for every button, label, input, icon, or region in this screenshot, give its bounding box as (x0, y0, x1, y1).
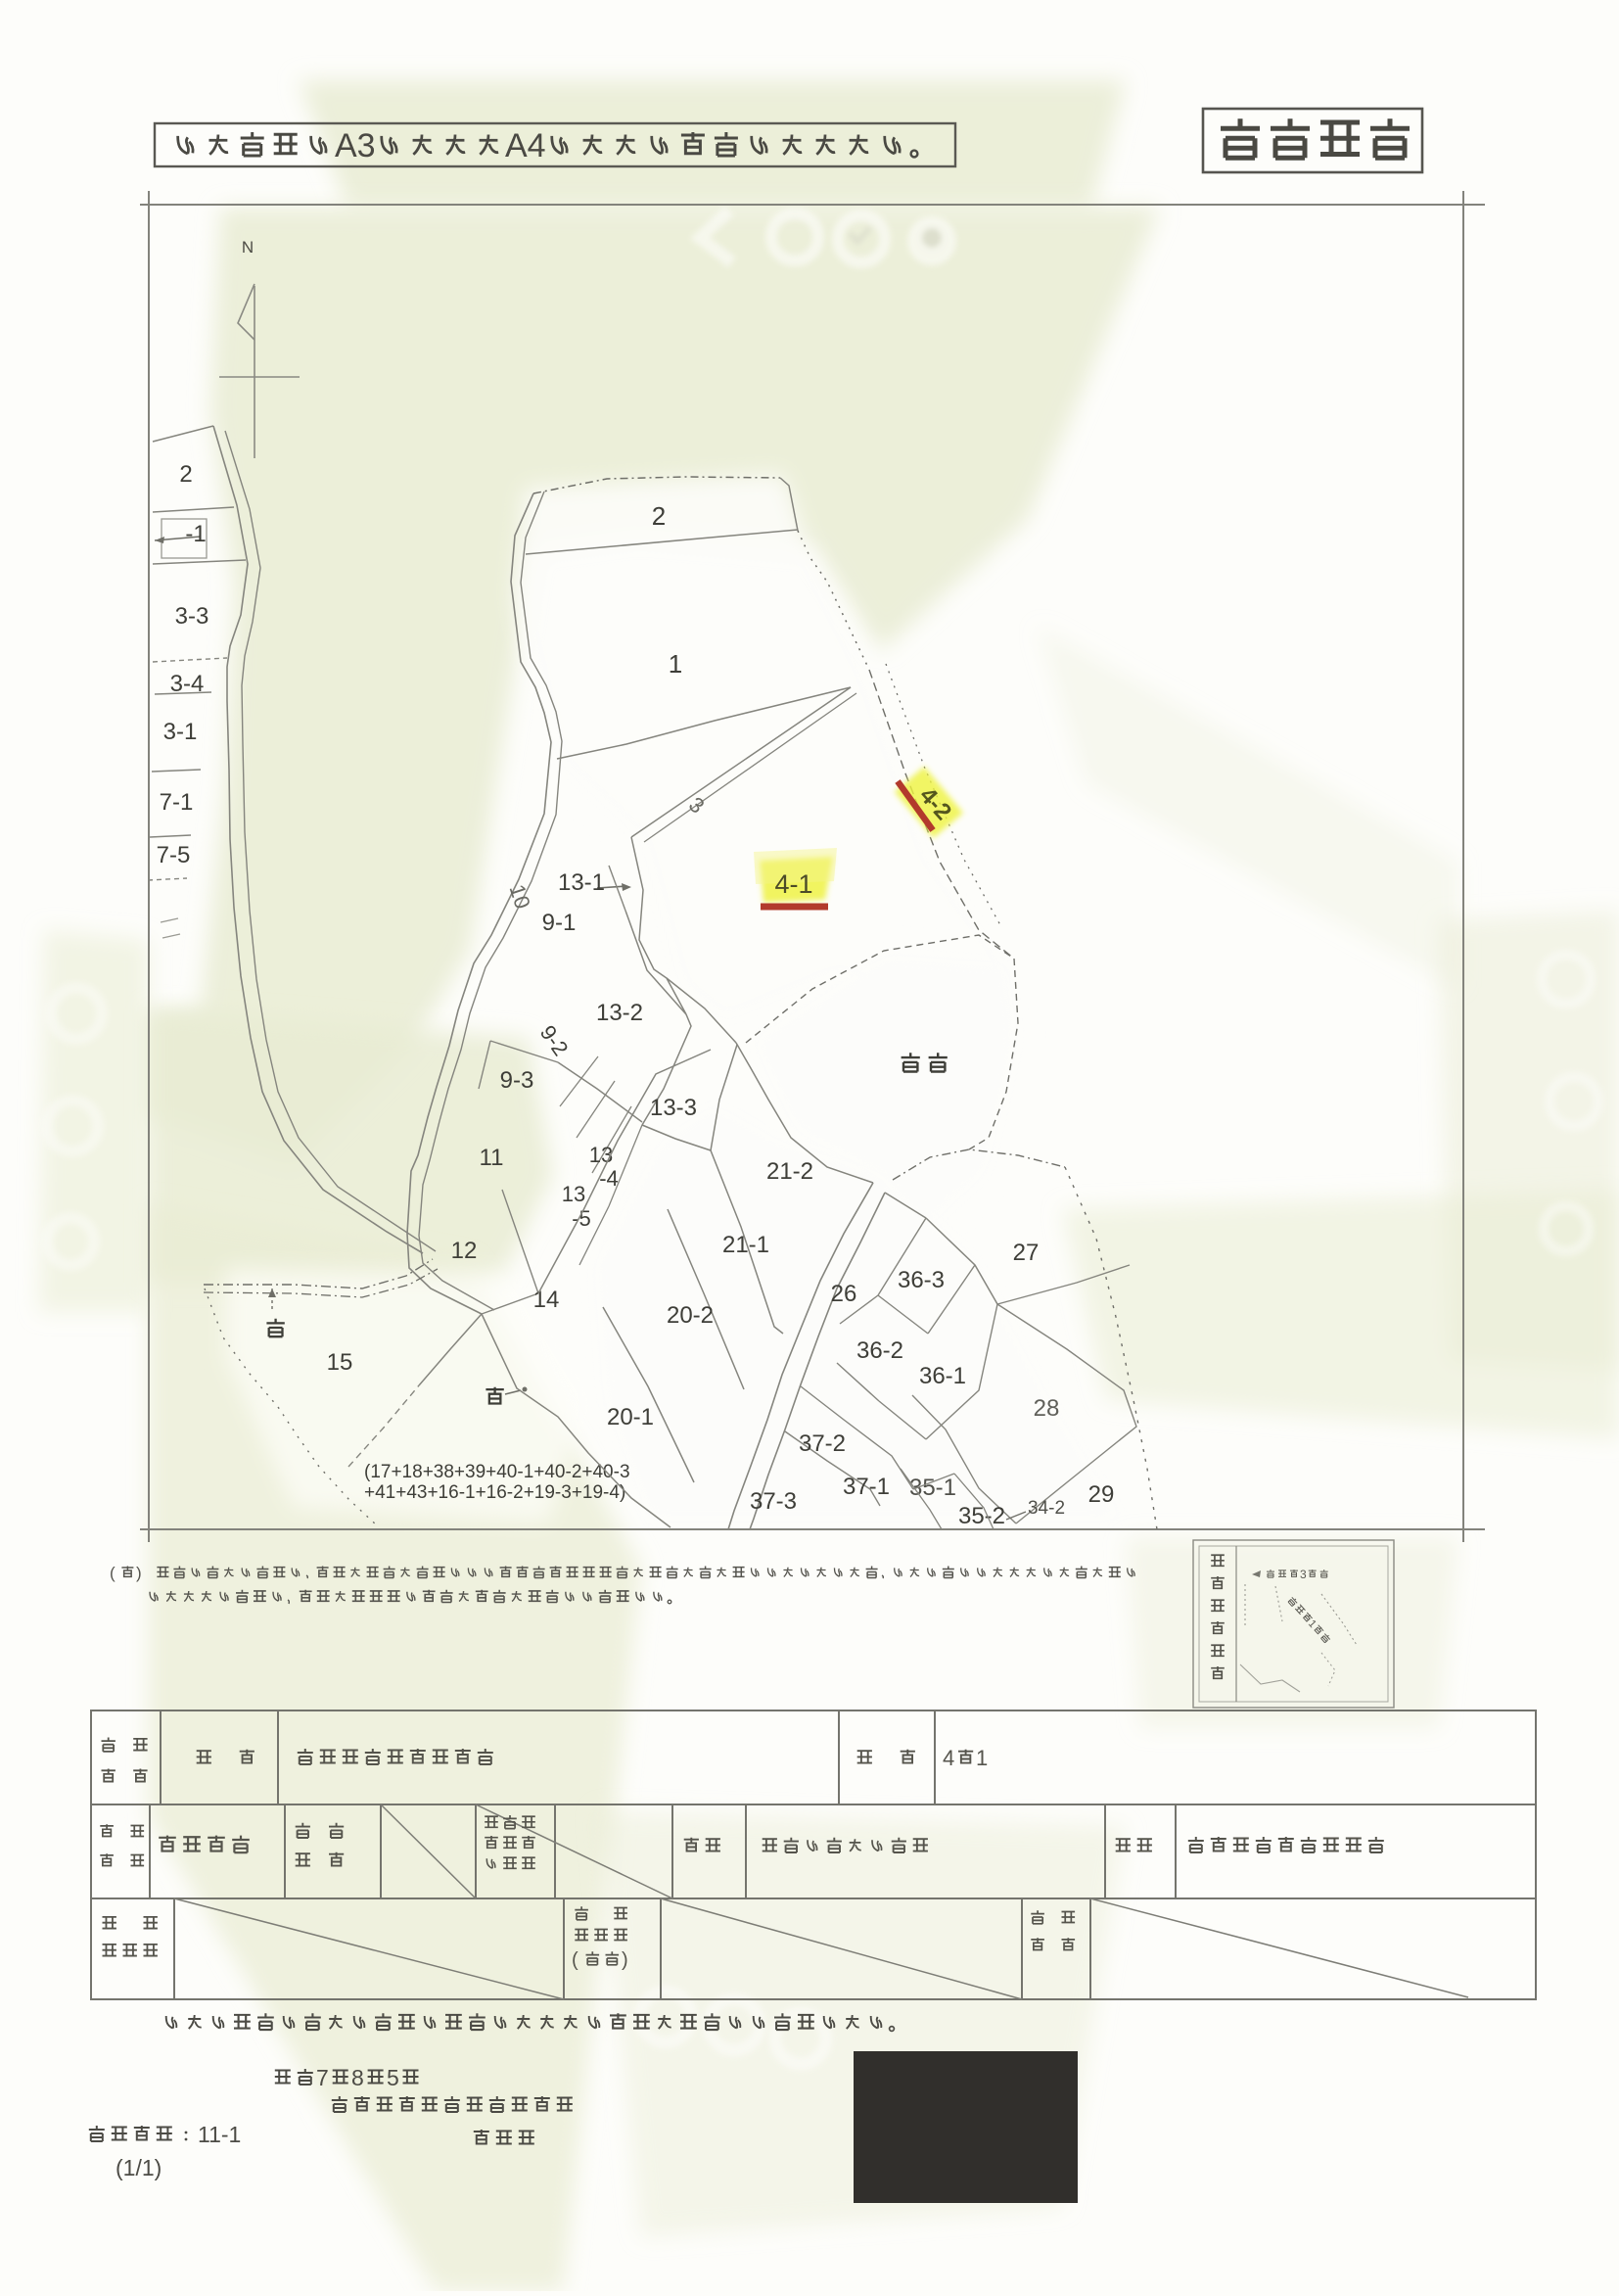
svg-text:9-2: 9-2 (535, 1021, 574, 1060)
svg-text:3-4: 3-4 (170, 671, 205, 697)
svg-text:34-2: 34-2 (1028, 1498, 1065, 1519)
svg-text:-1: -1 (185, 521, 206, 547)
svg-text:29: 29 (1088, 1481, 1115, 1508)
svg-text:37-1: 37-1 (843, 1474, 890, 1500)
svg-text:21-2: 21-2 (766, 1158, 813, 1185)
svg-text:(: ( (110, 1564, 116, 1582)
svg-text:11: 11 (480, 1145, 504, 1171)
svg-text:20-2: 20-2 (667, 1302, 714, 1329)
svg-text:21-1: 21-1 (722, 1232, 769, 1258)
svg-text:13-3: 13-3 (650, 1095, 697, 1121)
svg-text:(17+18+38+39+40-1+40-2+40-3: (17+18+38+39+40-1+40-2+40-3 (364, 1462, 630, 1482)
svg-text:12: 12 (451, 1238, 478, 1264)
svg-text:A4: A4 (505, 127, 546, 164)
svg-text:9-1: 9-1 (542, 910, 577, 936)
svg-text:13-2: 13-2 (596, 1000, 643, 1026)
svg-text:N: N (242, 238, 254, 257)
svg-text:+41+43+16-1+16-2+19-3+19-4): +41+43+16-1+16-2+19-3+19-4) (364, 1482, 625, 1503)
svg-text:37-2: 37-2 (799, 1430, 846, 1457)
svg-text:3: 3 (1300, 1568, 1307, 1581)
svg-text:1: 1 (669, 649, 682, 679)
svg-text:3-1: 3-1 (163, 719, 198, 745)
svg-text:2: 2 (179, 461, 192, 488)
svg-text:3-3: 3-3 (175, 603, 209, 630)
svg-text:1: 1 (976, 1746, 988, 1770)
svg-text:A3: A3 (335, 127, 376, 164)
svg-text:20-1: 20-1 (607, 1404, 654, 1430)
svg-text:-4: -4 (599, 1166, 619, 1191)
svg-text:14: 14 (533, 1287, 560, 1313)
svg-text:8: 8 (351, 2065, 364, 2090)
svg-text:27: 27 (1013, 1240, 1040, 1266)
svg-text:13-1: 13-1 (558, 869, 605, 896)
svg-text:36-1: 36-1 (919, 1363, 966, 1389)
svg-text:7-5: 7-5 (157, 842, 191, 868)
svg-text:7: 7 (316, 2065, 329, 2090)
svg-text:2: 2 (652, 501, 666, 531)
svg-text:): ) (136, 1564, 142, 1582)
svg-text:7-1: 7-1 (160, 789, 194, 816)
svg-text:): ) (622, 1949, 628, 1971)
svg-text:28: 28 (1034, 1395, 1060, 1422)
svg-text:37-3: 37-3 (750, 1488, 797, 1515)
svg-text:36-3: 36-3 (898, 1267, 945, 1293)
svg-text:(: ( (572, 1949, 578, 1971)
svg-text:15: 15 (327, 1349, 353, 1376)
svg-text:36-2: 36-2 (856, 1337, 903, 1364)
svg-text:9-3: 9-3 (500, 1067, 534, 1094)
svg-text:4-1: 4-1 (774, 869, 812, 899)
svg-text:4: 4 (943, 1746, 954, 1770)
svg-text:13: 13 (589, 1143, 613, 1167)
svg-text:11-1: 11-1 (198, 2122, 241, 2147)
svg-text:10: 10 (504, 881, 534, 912)
svg-text:35-2: 35-2 (958, 1503, 1005, 1529)
svg-text:13: 13 (562, 1182, 585, 1206)
svg-text:5: 5 (387, 2065, 399, 2090)
svg-text:26: 26 (831, 1281, 857, 1307)
svg-text:(1/1): (1/1) (116, 2155, 162, 2180)
